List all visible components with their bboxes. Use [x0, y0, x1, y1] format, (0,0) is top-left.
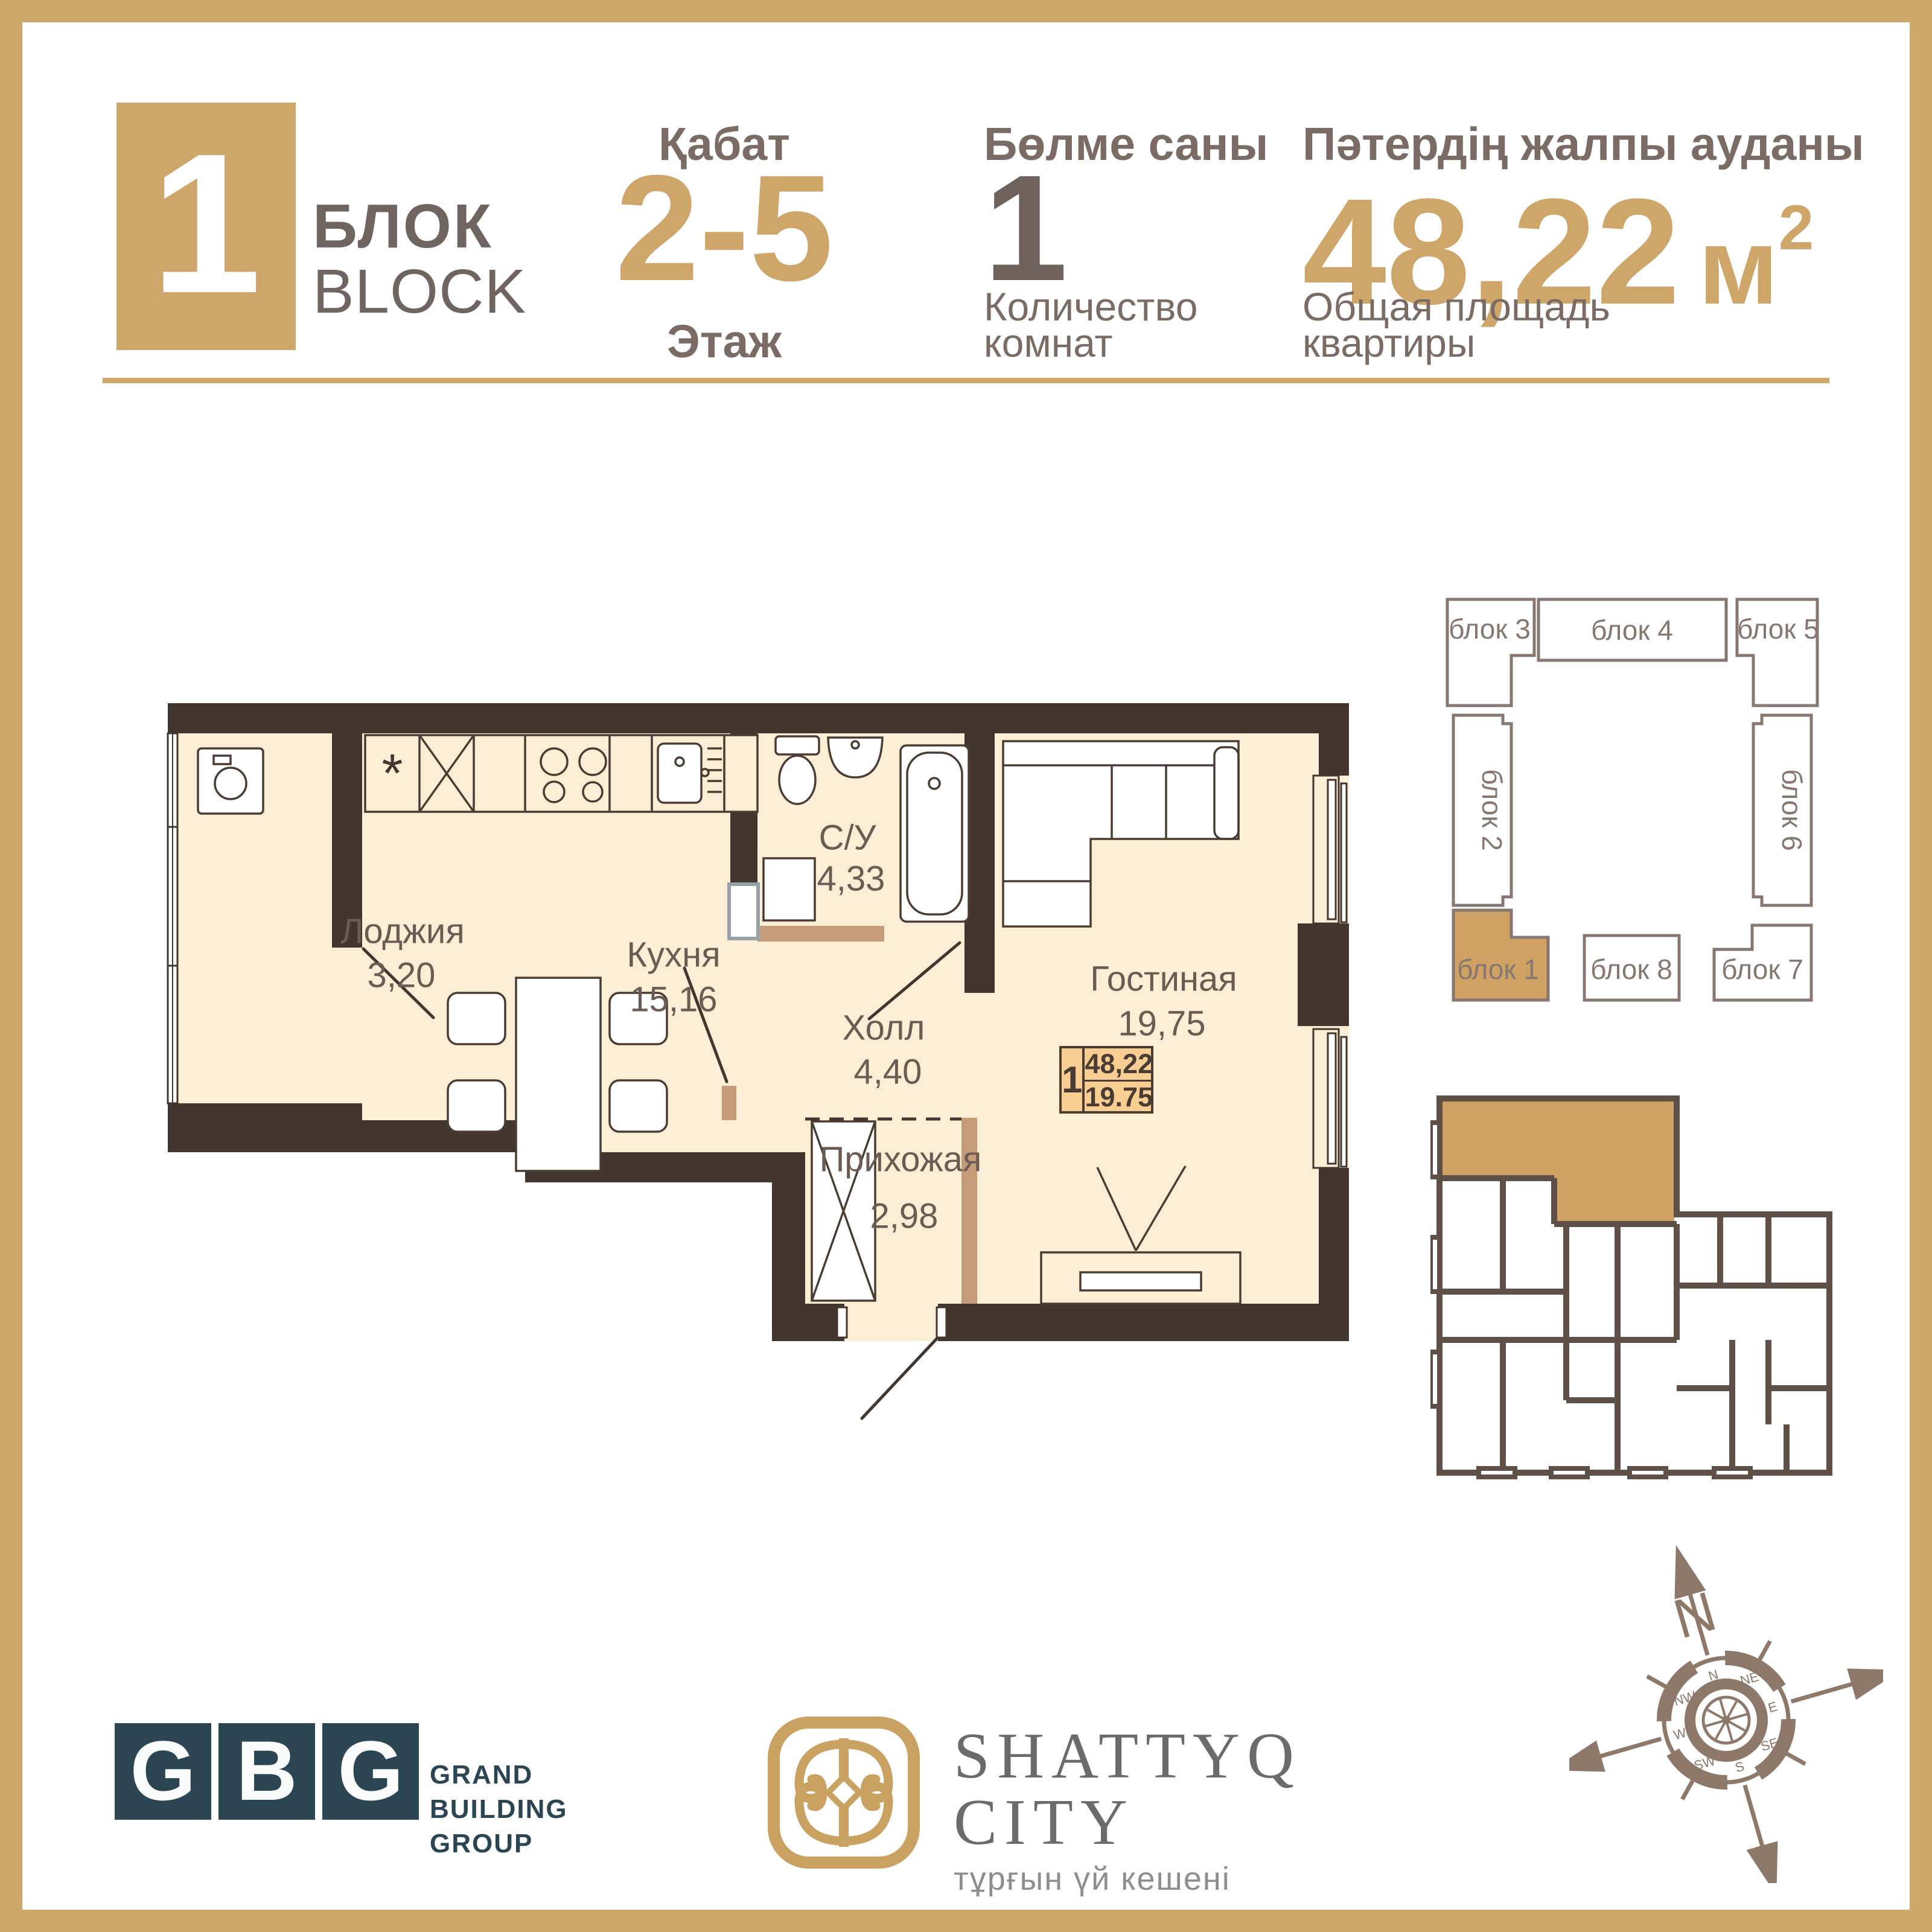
badge-total-area: 48,22 [1085, 1048, 1153, 1082]
area-unit-sup: 2 [1779, 193, 1814, 263]
boiler-cabinet [764, 858, 815, 920]
site-block-3-label: блок 3 [1449, 613, 1531, 645]
rooms-label-ru: Количество комнат [984, 289, 1197, 361]
toilet-icon [776, 736, 819, 804]
room-name-hall: Холл [843, 1008, 925, 1048]
block-title-kz: БЛОК [313, 191, 493, 262]
ornament-diamond [828, 1777, 859, 1808]
rooms-label-ru-line1: Количество [984, 289, 1197, 325]
block-title-en: BLOCK [313, 256, 526, 327]
miniplan-highlighted-apartment [1441, 1101, 1674, 1224]
project-subtitle: тұрғын үй кешені [954, 1860, 1231, 1898]
area-label-ru: Общая площадь квартиры [1302, 289, 1610, 361]
room-area-kitchen: 15,16 [630, 980, 717, 1020]
compass-dir-n: N [1707, 1666, 1720, 1683]
room-area-entry: 2,98 [870, 1196, 939, 1237]
gbg-logo-square-1: G [115, 1723, 211, 1820]
floor-value: 2-5 [615, 147, 833, 310]
gbg-logo-square-2: B [218, 1723, 315, 1820]
site-block-1-label: блок 1 [1457, 954, 1539, 985]
room-name-entry: Прихожая [820, 1140, 982, 1180]
area-label-ru-line1: Общая площадь [1302, 289, 1610, 325]
room-area-bathroom: 4,33 [817, 859, 885, 899]
area-unit: м2 [1698, 206, 1814, 327]
site-block-6-label: блок 6 [1776, 769, 1808, 851]
project-title-line1: SHATTYQ [954, 1719, 1301, 1794]
gbg-logo-square-3: G [322, 1723, 419, 1820]
room-name-kitchen: Кухня [626, 935, 720, 975]
badge-living-area: 19.75 [1085, 1082, 1153, 1113]
badge-room-count: 1 [1062, 1048, 1085, 1111]
project-title-line2: CITY [954, 1785, 1135, 1860]
area-label-ru-line2: квартиры [1302, 325, 1610, 361]
floor-label-ru: Этаж [667, 315, 782, 369]
apartment-floorplan: * [163, 688, 1358, 1449]
site-block-8-label: блок 8 [1590, 954, 1672, 985]
gbg-name-line1: GRAND [430, 1758, 568, 1792]
floor-location-miniplan [1430, 1086, 1841, 1485]
room-name-loggia: Лоджия [340, 911, 465, 952]
compass-dir-e: E [1767, 1698, 1779, 1715]
site-block-5-label: блок 5 [1737, 613, 1819, 645]
balcony-window [168, 733, 177, 1103]
compass-north-label: N [1667, 1580, 1723, 1650]
room-area-living: 19,75 [1118, 1004, 1205, 1044]
room-name-living: Гостиная [1090, 959, 1237, 999]
site-block-2-label: блок 2 [1476, 769, 1508, 851]
vent-shaft [729, 884, 758, 939]
compass-dir-s: S [1733, 1758, 1746, 1775]
compass-hub-spokes [1699, 1693, 1753, 1747]
room-area-loggia: 3,20 [368, 955, 436, 996]
compass-arrowheads [1569, 1521, 1883, 1883]
gbg-name-line3: GROUP [430, 1826, 568, 1861]
header-divider [103, 378, 1829, 383]
rooms-label-ru-line2: комнат [984, 325, 1197, 361]
gbg-company-name: GRAND BUILDING GROUP [430, 1758, 568, 1861]
fridge-symbol: * [381, 744, 403, 804]
apartment-info-badge: 1 48,22 19.75 [1059, 1046, 1153, 1114]
bathtub-icon [901, 745, 969, 922]
compass-dir-sw: SW [1692, 1753, 1717, 1773]
block-number-badge: 1 [116, 103, 296, 350]
room-area-hall: 4,40 [854, 1052, 922, 1092]
shattyq-ornament-icon [765, 1714, 922, 1871]
flat-plan-sheet: 1 БЛОК BLOCK Қабат 2-5 Этаж Бөлме саны 1… [0, 0, 1932, 1932]
compass-rose: N NE E SE S SW W NW N [1569, 1521, 1883, 1883]
room-name-bathroom: С/У [819, 818, 876, 858]
gbg-name-line2: BUILDING [430, 1792, 568, 1826]
site-block-diagram: блок 3 блок 4 блок 5 блок 2 блок 6 блок … [1436, 585, 1835, 1020]
washing-machine-icon [198, 748, 263, 814]
site-block-4-label: блок 4 [1591, 614, 1673, 646]
site-block-7-label: блок 7 [1721, 954, 1803, 985]
